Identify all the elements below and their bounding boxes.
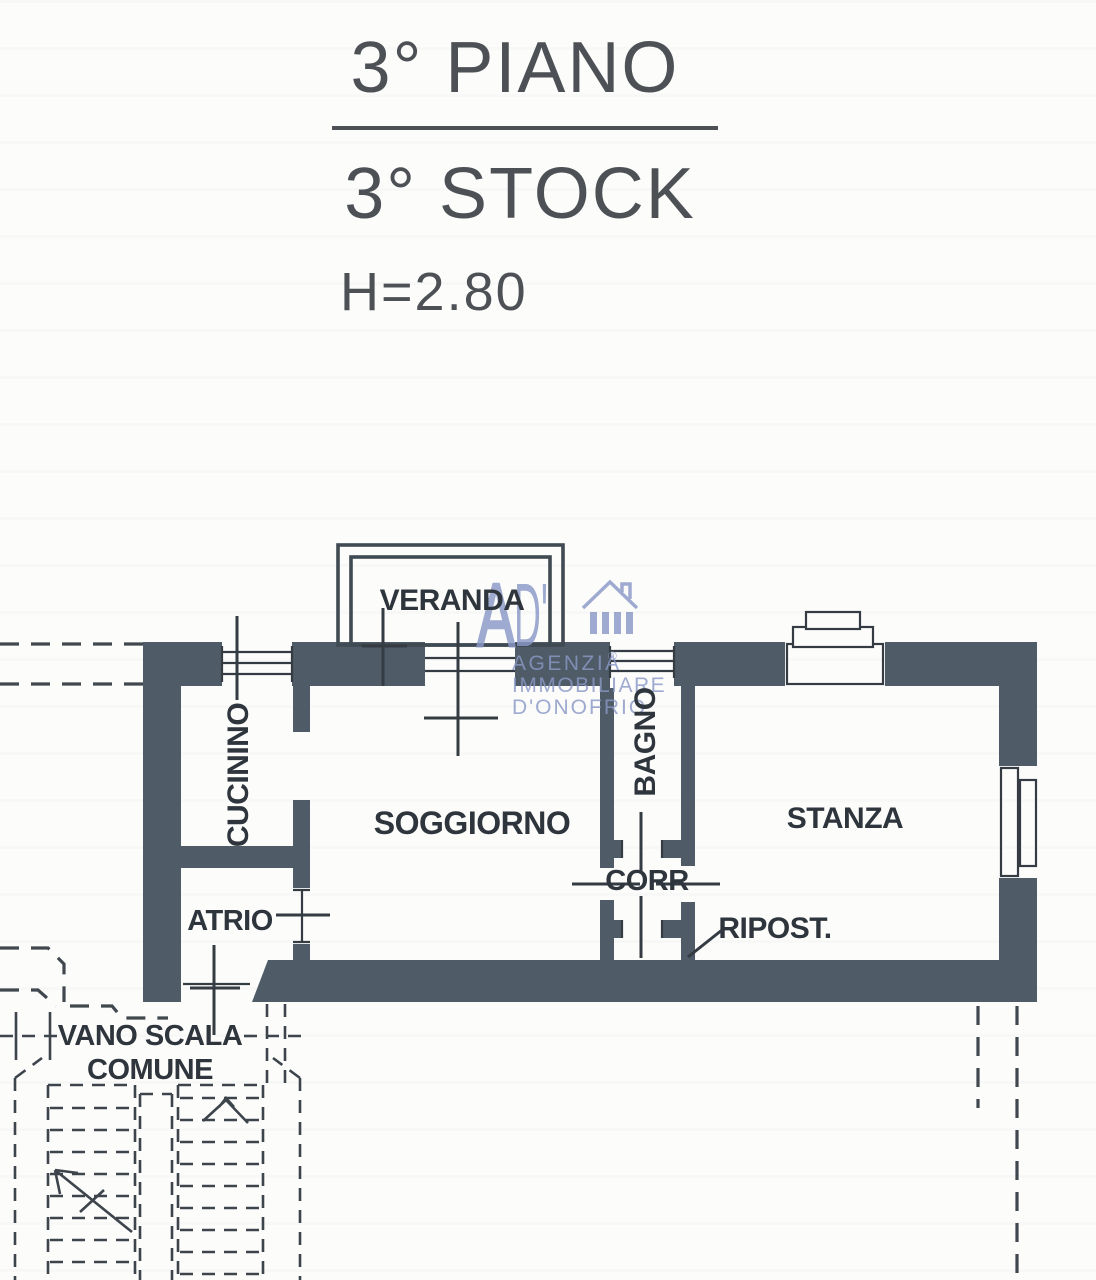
stairwell-boundary-east	[273, 1058, 300, 1280]
wall-corr-ripost-right	[662, 920, 695, 938]
neighbor-balcony-dash-3	[70, 1006, 168, 1018]
watermark-agency-line3: D'ONOFRIO	[512, 696, 647, 719]
room-label-ripost: RIPOST.	[718, 912, 831, 945]
stanza-east-window-frame-inner	[1001, 768, 1018, 876]
wall-bagno-corr-left	[600, 840, 622, 858]
stair-direction-arrow-left	[55, 1170, 132, 1232]
stanza-north-window-sill-top	[806, 612, 860, 629]
house-pillar-4	[626, 612, 633, 634]
wall-cucinino-atrio-divider	[181, 846, 310, 868]
wall-west	[143, 642, 181, 1002]
stair-steps-left-flight	[50, 1108, 133, 1262]
stairwell-boundary-west	[15, 1058, 42, 1280]
house-pillar-1	[590, 612, 597, 634]
neighbor-balcony-dash-1	[0, 948, 64, 1002]
room-label-vano-scala-line2: COMUNE	[87, 1054, 213, 1086]
wall-south	[252, 960, 1037, 1002]
watermark-agency-line1: AGENZIA	[512, 652, 622, 675]
stanza-north-window-frame	[787, 644, 883, 684]
stair-steps-right-flight	[180, 1098, 262, 1274]
floor-title-german: 3° STOCK	[344, 154, 696, 234]
room-label-stanza: STANZA	[787, 802, 903, 835]
registered-trademark-icon: ®	[608, 649, 617, 663]
stair-central-wall	[140, 1094, 172, 1280]
floor-title-italian: 3° PIANO	[351, 28, 680, 108]
wall-cucinino-soggiorno-upper	[293, 686, 310, 732]
ceiling-height-note: H=2.80	[340, 262, 528, 322]
wall-corr-ripost-left	[600, 920, 622, 938]
stanza-east-window-frame-outer	[1020, 780, 1036, 866]
house-pillar-2	[602, 612, 609, 634]
room-label-veranda: VERANDA	[380, 584, 525, 617]
house-icon	[583, 582, 637, 634]
floor-plan: 3° PIANO 3° STOCK H=2.80	[0, 0, 1096, 1280]
wall-bagno-east-upper	[681, 686, 695, 866]
room-label-corr: CORR	[605, 865, 689, 897]
house-pillar-3	[614, 612, 621, 634]
room-label-bagno: BAGNO	[629, 687, 662, 796]
room-label-vano-scala-line1: VANO SCALA	[58, 1020, 243, 1052]
room-label-cucinino: CUCININO	[222, 703, 255, 847]
room-label-atrio: ATRIO	[187, 905, 273, 937]
wall-bagno-corr-right	[662, 840, 695, 858]
room-label-soggiorno: SOGGIORNO	[374, 805, 570, 841]
wall-atrio-soggiorno-stub	[293, 944, 310, 964]
title-block: 3° PIANO 3° STOCK H=2.80	[332, 28, 718, 322]
neighbor-balcony-dash-2	[0, 990, 56, 1006]
wall-cucinino-soggiorno-mid	[293, 800, 310, 888]
stairwell-landing-connector	[267, 1004, 285, 1085]
